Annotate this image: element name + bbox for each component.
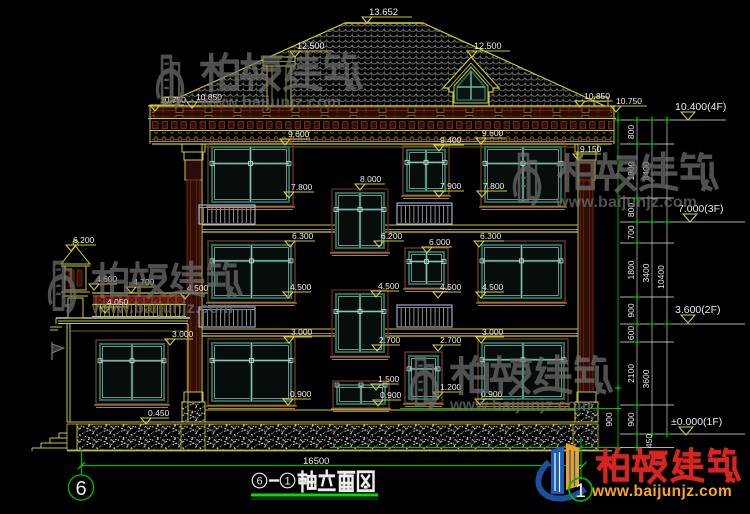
svg-text:1800: 1800 xyxy=(626,260,636,279)
svg-text:8.000: 8.000 xyxy=(360,174,382,184)
svg-text:2100: 2100 xyxy=(626,364,636,383)
svg-text:4.500: 4.500 xyxy=(378,281,400,291)
svg-text:1: 1 xyxy=(575,481,586,502)
svg-text:±0.000(1F): ±0.000(1F) xyxy=(671,416,722,428)
svg-text:0.450: 0.450 xyxy=(148,408,170,418)
svg-text:4.500: 4.500 xyxy=(482,282,504,292)
svg-text:www.baijunjz.com: www.baijunjz.com xyxy=(449,397,591,414)
svg-text:7.800: 7.800 xyxy=(291,182,313,192)
svg-text:900: 900 xyxy=(626,303,636,317)
svg-text:6.200: 6.200 xyxy=(73,235,95,245)
svg-text:3.000: 3.000 xyxy=(172,329,194,339)
svg-text:10400: 10400 xyxy=(656,265,666,289)
svg-text:9.600: 9.600 xyxy=(482,128,504,138)
svg-text:7.800: 7.800 xyxy=(483,181,505,191)
svg-text:9.400: 9.400 xyxy=(440,135,462,145)
svg-text:9.600: 9.600 xyxy=(288,129,310,139)
svg-text:7.900: 7.900 xyxy=(440,181,462,191)
svg-text:3.000: 3.000 xyxy=(291,327,313,337)
svg-text:900: 900 xyxy=(626,412,636,426)
svg-text:0.900: 0.900 xyxy=(380,390,402,400)
svg-text:6.300: 6.300 xyxy=(292,231,314,241)
svg-text:3600: 3600 xyxy=(641,369,651,388)
svg-text:9.150: 9.150 xyxy=(580,144,602,154)
svg-text:12.500: 12.500 xyxy=(474,41,502,51)
svg-text:800: 800 xyxy=(626,125,636,139)
svg-text:10.400(4F): 10.400(4F) xyxy=(675,101,726,113)
svg-text:6.300: 6.300 xyxy=(480,231,502,241)
svg-text:600: 600 xyxy=(626,326,636,340)
svg-text:6: 6 xyxy=(256,476,262,488)
svg-text:1: 1 xyxy=(284,476,290,488)
svg-text:www.baijunjz.com: www.baijunjz.com xyxy=(591,483,732,500)
svg-text:3.000: 3.000 xyxy=(482,327,504,337)
svg-text:3.600(2F): 3.600(2F) xyxy=(675,304,721,316)
svg-text:www.baijunjz.com: www.baijunjz.com xyxy=(199,94,341,111)
svg-text:1.500: 1.500 xyxy=(378,374,400,384)
svg-text:1.200: 1.200 xyxy=(440,382,462,392)
svg-text:10.750: 10.750 xyxy=(616,96,642,106)
svg-text:4.500: 4.500 xyxy=(440,282,462,292)
svg-text:3400: 3400 xyxy=(641,263,651,282)
svg-text:www.baijunjz.com: www.baijunjz.com xyxy=(91,300,233,317)
svg-text:2.700: 2.700 xyxy=(379,335,401,345)
svg-text:13.652: 13.652 xyxy=(369,7,398,18)
svg-text:6.200: 6.200 xyxy=(381,231,403,241)
svg-text:6: 6 xyxy=(75,478,86,500)
svg-text:0.900: 0.900 xyxy=(290,389,312,399)
svg-text:10.850: 10.850 xyxy=(584,91,610,101)
svg-text:www.baijunjz.com: www.baijunjz.com xyxy=(555,194,697,211)
svg-text:16500: 16500 xyxy=(303,456,329,467)
svg-text:450: 450 xyxy=(644,434,654,448)
svg-text:6.000: 6.000 xyxy=(429,237,451,247)
svg-text:700: 700 xyxy=(626,225,636,239)
svg-text:4.500: 4.500 xyxy=(290,282,312,292)
svg-text:12.500: 12.500 xyxy=(297,41,325,51)
svg-text:900: 900 xyxy=(604,412,614,426)
svg-text:2.700: 2.700 xyxy=(440,335,462,345)
